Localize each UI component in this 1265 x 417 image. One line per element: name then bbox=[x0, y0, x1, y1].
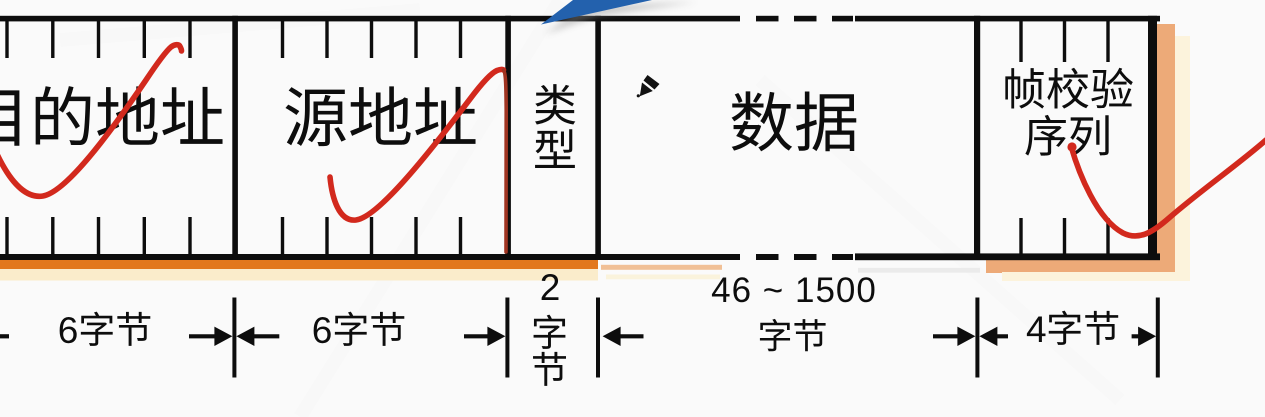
svg-text:6: 6 bbox=[312, 310, 333, 351]
svg-text:46 ~ 1500: 46 ~ 1500 bbox=[711, 271, 877, 310]
svg-text:6: 6 bbox=[58, 310, 79, 351]
svg-text:2: 2 bbox=[540, 267, 561, 308]
svg-text:4: 4 bbox=[1026, 309, 1047, 350]
